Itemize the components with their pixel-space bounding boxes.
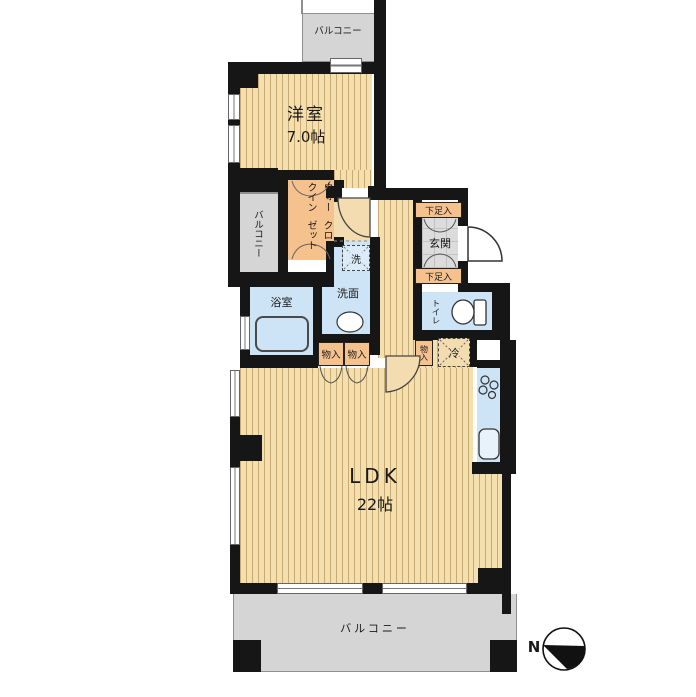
toilet-bowl xyxy=(452,300,474,324)
kitchen-sink xyxy=(479,429,499,459)
walk-in-closet-label: ウォークイン クローゼット xyxy=(288,182,334,258)
entrance-label: 玄関 xyxy=(422,235,458,251)
floor-plan: 下足入 下足入 物入 物入 物入 冷 洗 xyxy=(0,0,696,697)
western-room-door-swing xyxy=(338,198,370,237)
western-room-name: 洋室 xyxy=(240,100,372,125)
toilet-label: トイレ xyxy=(429,297,441,327)
ldk-name: LDK xyxy=(300,464,450,488)
stove-burner xyxy=(489,392,496,399)
compass-n-label: N xyxy=(524,638,544,656)
balcony-top-label: バルコニー xyxy=(302,23,374,37)
wic-line2: クローゼット xyxy=(288,220,334,258)
western-room-size: 7.0帖 xyxy=(240,126,372,147)
balcony-bottom-label: バルコニー xyxy=(233,620,517,636)
ldk-size: 22帖 xyxy=(300,491,450,515)
stove-burner xyxy=(479,386,487,394)
fridge-corner-marks xyxy=(440,340,468,365)
hallway-door-swing xyxy=(386,356,420,392)
washer-corner-marks xyxy=(344,247,368,269)
stove-burner xyxy=(481,376,489,384)
washroom-sink xyxy=(337,312,363,332)
toilet-tank xyxy=(474,300,486,325)
wic-line1: ウォークイン xyxy=(288,182,334,220)
entrance-door-swing xyxy=(468,227,502,261)
balcony-left-label: バルコニー xyxy=(250,199,264,269)
bathroom-label: 浴室 xyxy=(250,294,313,310)
storage-scallops xyxy=(320,366,368,383)
washroom-label: 洗面 xyxy=(322,285,374,301)
stove-burner xyxy=(490,381,498,389)
